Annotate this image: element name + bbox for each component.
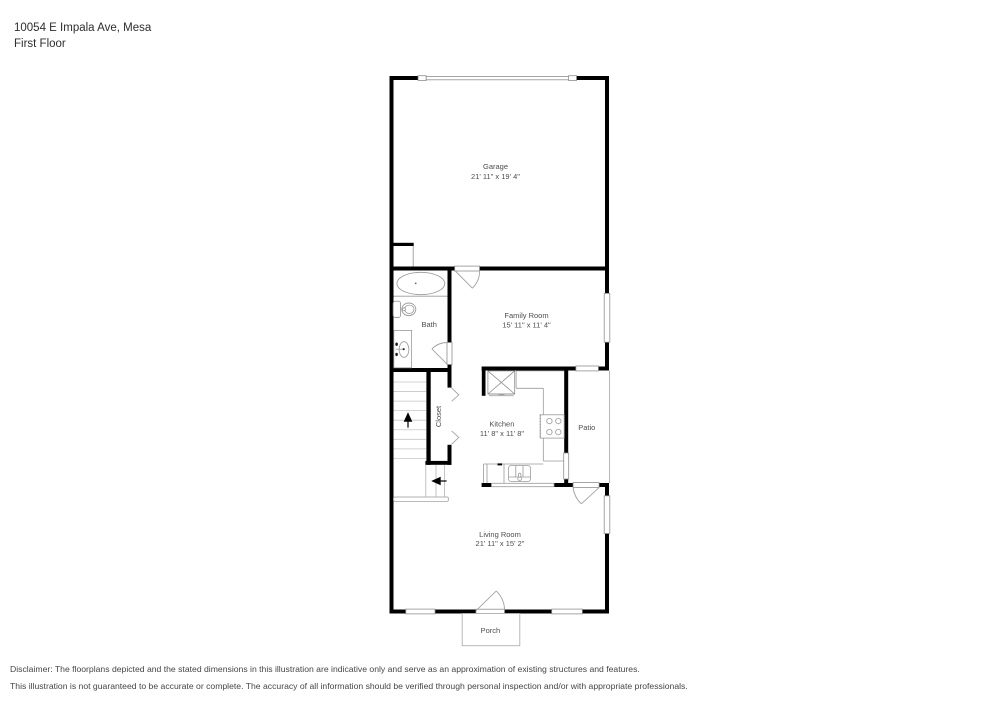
svg-text:Kitchen: Kitchen: [489, 420, 514, 429]
svg-text:Patio: Patio: [578, 423, 595, 432]
svg-text:11' 8" x 11' 8": 11' 8" x 11' 8": [480, 429, 525, 438]
svg-text:21' 11" x 15' 2": 21' 11" x 15' 2": [476, 539, 525, 548]
svg-text:Porch: Porch: [481, 626, 501, 635]
svg-text:Living Room: Living Room: [479, 530, 521, 539]
svg-text:21' 11" x 19' 4": 21' 11" x 19' 4": [471, 172, 520, 181]
svg-text:15' 11" x 11' 4": 15' 11" x 11' 4": [502, 320, 551, 329]
svg-text:Family Room: Family Room: [504, 311, 548, 320]
svg-text:Bath: Bath: [421, 320, 436, 329]
svg-text:Garage: Garage: [483, 162, 508, 171]
svg-text:Closet: Closet: [434, 405, 443, 427]
